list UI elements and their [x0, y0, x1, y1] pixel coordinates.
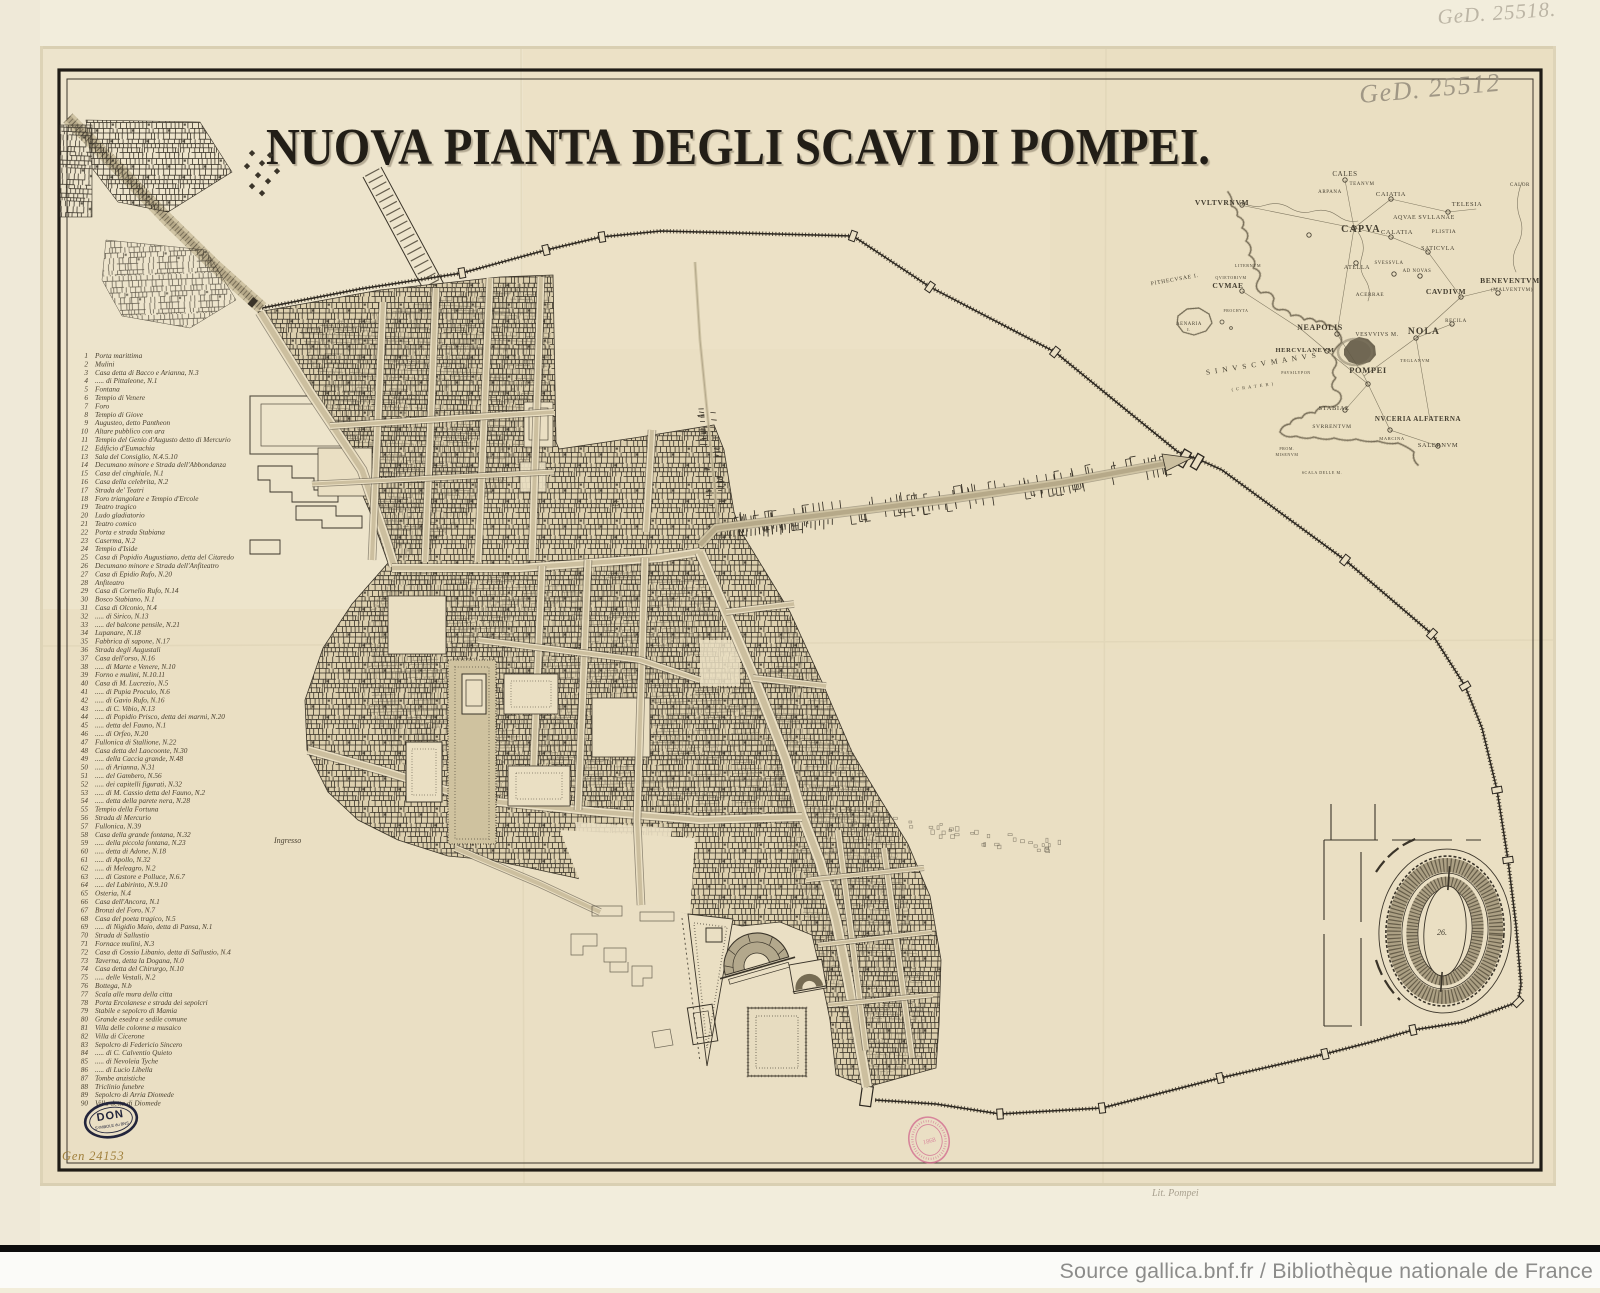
svg-text:SALERNVM: SALERNVM	[1418, 442, 1459, 449]
svg-text:AQVAE SVLLANAE: AQVAE SVLLANAE	[1393, 215, 1455, 221]
svg-text:VESVVIVS M.: VESVVIVS M.	[1355, 332, 1398, 338]
svg-text:NEAPOLIS: NEAPOLIS	[1297, 323, 1343, 332]
svg-text:MISENVM: MISENVM	[1275, 452, 1298, 457]
svg-text:76: 76	[845, 806, 853, 814]
svg-text:POMPEI: POMPEI	[1349, 365, 1387, 375]
svg-text:CALATIA: CALATIA	[1381, 229, 1413, 236]
svg-text:PROM.: PROM.	[1279, 446, 1294, 451]
svg-text:Gen 24153: Gen 24153	[62, 1149, 124, 1163]
svg-text:RECILA: RECILA	[1445, 319, 1467, 324]
svg-text:PLISTIA: PLISTIA	[1432, 229, 1457, 235]
svg-text:QVIETORIVM: QVIETORIVM	[1215, 275, 1246, 280]
svg-text:(MALVENTVM): (MALVENTVM)	[1491, 288, 1533, 293]
svg-text:ATELLA: ATELLA	[1344, 265, 1370, 271]
svg-text:SVRRENTVM: SVRRENTVM	[1312, 424, 1351, 430]
svg-text:CAPVA: CAPVA	[1341, 224, 1381, 235]
svg-text:NUOVA PIANTA DEGLI SCAVI DI PO: NUOVA PIANTA DEGLI SCAVI DI POMPEI.	[266, 119, 1210, 176]
svg-text:SATICVLA: SATICVLA	[1421, 246, 1455, 252]
svg-text:AD NOVAS: AD NOVAS	[1403, 269, 1432, 274]
svg-text:SCALA DELLE M.: SCALA DELLE M.	[1302, 470, 1343, 475]
svg-text:Source gallica.bnf.fr / Biblio: Source gallica.bnf.fr / Bibliothèque nat…	[1060, 1259, 1594, 1283]
svg-text:ARPANA: ARPANA	[1318, 190, 1342, 195]
svg-text:CVMAE: CVMAE	[1212, 281, 1243, 290]
svg-text:26.: 26.	[1437, 928, 1447, 937]
svg-text:MARCINA: MARCINA	[1379, 436, 1405, 441]
svg-text:NVCERIA ALFATERNA: NVCERIA ALFATERNA	[1375, 415, 1461, 423]
svg-text:CALES: CALES	[1332, 170, 1357, 178]
svg-text:NOLA: NOLA	[1408, 327, 1440, 337]
svg-text:CAIATIA: CAIATIA	[1376, 191, 1406, 198]
svg-text:CAVDIVM: CAVDIVM	[1426, 287, 1466, 296]
svg-text:VVLTVRNVM: VVLTVRNVM	[1195, 198, 1249, 207]
svg-text:PROCHYTA: PROCHYTA	[1224, 309, 1249, 313]
svg-text:ACERRAE: ACERRAE	[1356, 292, 1384, 298]
svg-text:TEGLANVM: TEGLANVM	[1400, 358, 1430, 363]
svg-text:STABIAE: STABIAE	[1318, 405, 1349, 412]
svg-text:TELESIA: TELESIA	[1452, 201, 1483, 208]
svg-text:BENEVENTVM: BENEVENTVM	[1480, 276, 1540, 285]
svg-text:LITERNVM: LITERNVM	[1235, 263, 1261, 268]
svg-text:I.: I.	[1187, 327, 1191, 332]
svg-text:TEANVM: TEANVM	[1350, 182, 1375, 187]
svg-text:SVESSVLA: SVESSVLA	[1374, 261, 1403, 266]
svg-text:Lit. Pompei: Lit. Pompei	[1151, 1188, 1199, 1199]
svg-text:PAVSILYPON: PAVSILYPON	[1281, 370, 1311, 375]
svg-text:15: 15	[612, 500, 620, 508]
svg-text:90: 90	[81, 1099, 89, 1108]
svg-text:Ingresso: Ingresso	[273, 836, 301, 845]
svg-text:CALOR: CALOR	[1510, 183, 1530, 188]
